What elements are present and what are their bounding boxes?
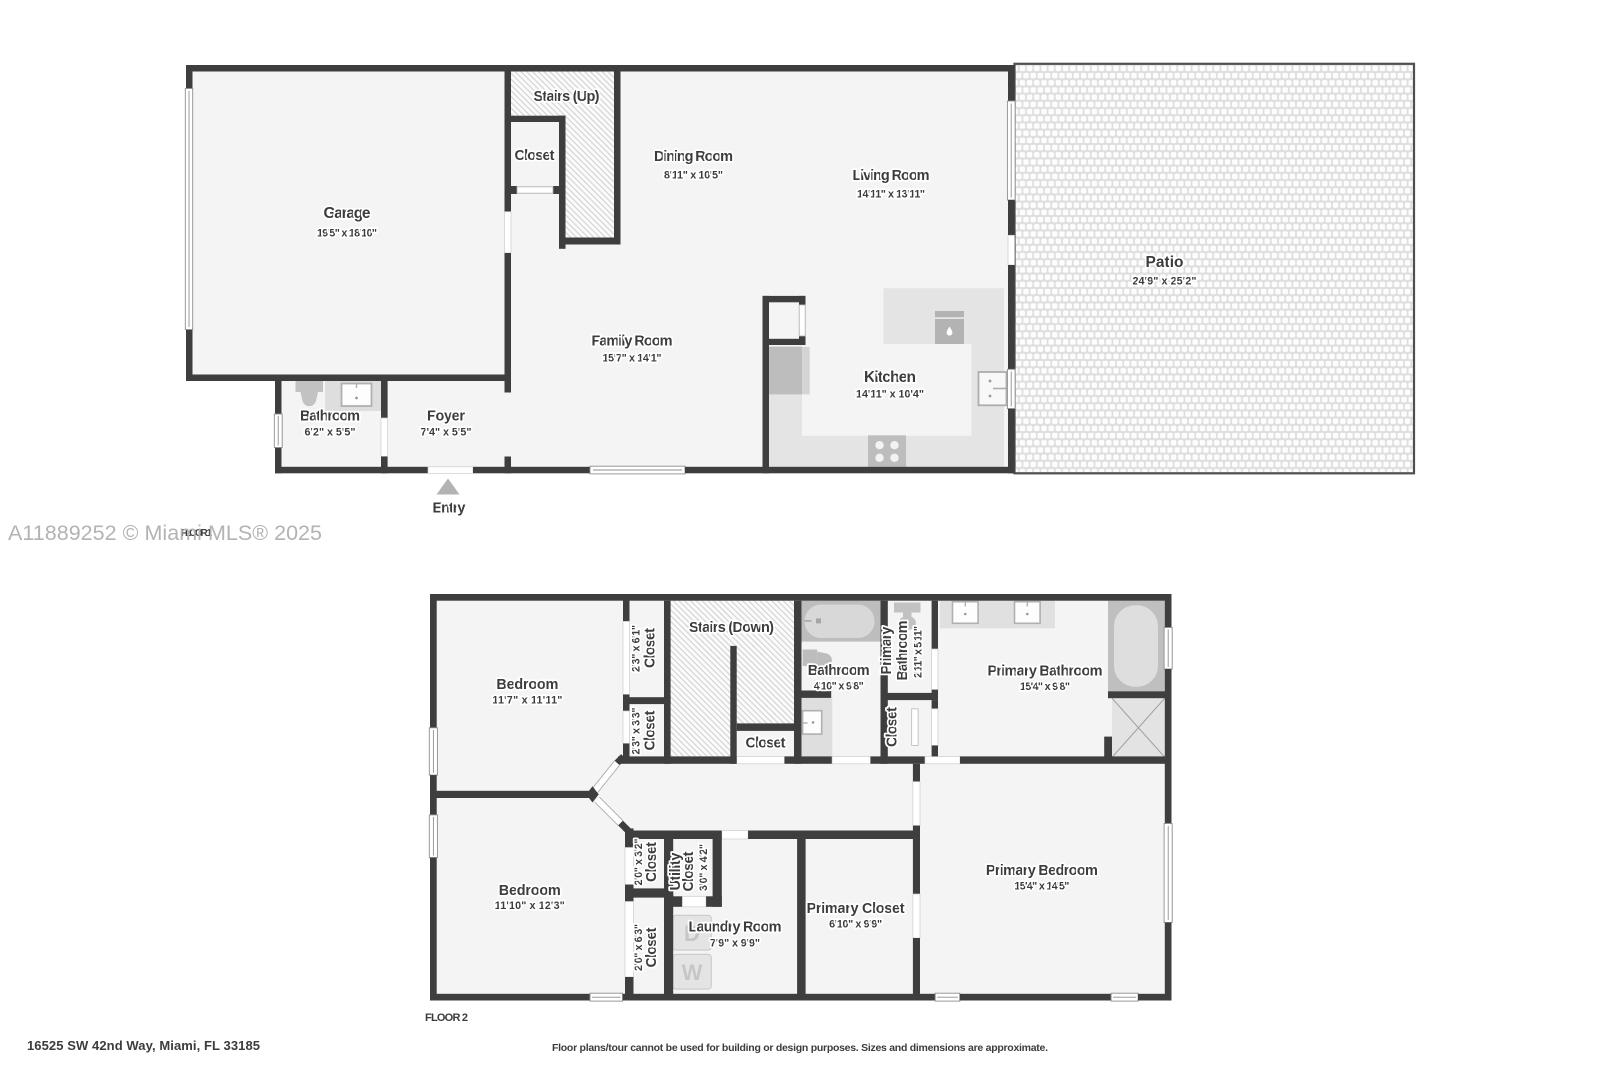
svg-text:6'2" x 5'5": 6'2" x 5'5" xyxy=(305,427,356,439)
svg-text:Stairs (Down): Stairs (Down) xyxy=(689,620,774,636)
svg-text:Primary Closet: Primary Closet xyxy=(807,901,905,917)
svg-text:16525 SW 42nd Way, Miami, FL 3: 16525 SW 42nd Way, Miami, FL 33185 xyxy=(27,1038,260,1053)
svg-text:14'11" x 13'11": 14'11" x 13'11" xyxy=(857,189,925,201)
svg-text:Dining Room: Dining Room xyxy=(654,149,733,165)
svg-text:Garage: Garage xyxy=(324,205,371,222)
svg-text:Closet: Closet xyxy=(644,927,660,967)
svg-text:Closet: Closet xyxy=(643,628,659,668)
svg-text:15'4" x 14'5": 15'4" x 14'5" xyxy=(1014,881,1069,893)
svg-text:Entry: Entry xyxy=(433,501,466,517)
svg-text:19'5" x 18'10": 19'5" x 18'10" xyxy=(317,228,377,240)
svg-text:7'4" x 5'5": 7'4" x 5'5" xyxy=(421,427,472,439)
svg-text:Laundry Room: Laundry Room xyxy=(689,920,782,936)
svg-text:Patio: Patio xyxy=(1146,254,1184,271)
svg-text:W: W xyxy=(682,960,703,985)
svg-text:Foyer: Foyer xyxy=(427,409,465,425)
svg-text:Kitchen: Kitchen xyxy=(864,369,916,386)
svg-text:Bathroom: Bathroom xyxy=(895,621,911,681)
svg-text:Closet: Closet xyxy=(746,736,786,752)
svg-text:7'9" x 9'9": 7'9" x 9'9" xyxy=(710,938,760,950)
svg-text:2'11" x 5'11": 2'11" x 5'11" xyxy=(912,626,924,678)
svg-text:14'11" x 10'4": 14'11" x 10'4" xyxy=(856,389,924,401)
svg-text:3'0" x 4'2": 3'0" x 4'2" xyxy=(698,844,710,891)
svg-text:4'10" x 9'8": 4'10" x 9'8" xyxy=(814,681,864,693)
svg-text:15'4" x 9'8": 15'4" x 9'8" xyxy=(1020,681,1070,693)
svg-text:Closet: Closet xyxy=(515,148,555,164)
svg-text:24'9" x 25'2": 24'9" x 25'2" xyxy=(1133,276,1197,288)
svg-text:Stairs (Up): Stairs (Up) xyxy=(534,89,600,105)
svg-text:Closet: Closet xyxy=(643,710,659,750)
svg-text:11'10" x 12'3": 11'10" x 12'3" xyxy=(495,900,565,912)
svg-text:2'0" x 6'3": 2'0" x 6'3" xyxy=(633,924,645,971)
svg-text:Primary: Primary xyxy=(879,627,895,675)
svg-text:Closet: Closet xyxy=(644,842,660,882)
svg-text:2'3" x 6'1": 2'3" x 6'1" xyxy=(630,625,642,672)
svg-text:8'11" x 10'5": 8'11" x 10'5" xyxy=(664,170,723,182)
svg-text:Closet: Closet xyxy=(885,707,901,747)
svg-text:Closet: Closet xyxy=(681,851,697,891)
svg-text:FLOOR 2: FLOOR 2 xyxy=(425,1012,468,1024)
svg-text:Bathroom: Bathroom xyxy=(808,663,870,679)
svg-text:6'10" x 9'9": 6'10" x 9'9" xyxy=(829,919,882,931)
svg-text:Primary Bathroom: Primary Bathroom xyxy=(988,664,1103,680)
svg-text:Primary Bedroom: Primary Bedroom xyxy=(986,863,1098,879)
svg-text:A11889252 © Miami MLS® 2025: A11889252 © Miami MLS® 2025 xyxy=(8,521,322,545)
svg-text:Bedroom: Bedroom xyxy=(499,883,561,899)
svg-text:Living Room: Living Room xyxy=(853,168,930,184)
svg-text:2'3" x 3'3": 2'3" x 3'3" xyxy=(630,708,642,755)
svg-text:15'7" x 14'1": 15'7" x 14'1" xyxy=(603,353,662,365)
svg-text:Family Room: Family Room xyxy=(592,334,673,350)
svg-text:Bathroom: Bathroom xyxy=(300,409,360,425)
svg-text:11'7" x 11'11": 11'7" x 11'11" xyxy=(492,695,562,707)
svg-text:Floor plans/tour cannot be use: Floor plans/tour cannot be used for buil… xyxy=(552,1042,1048,1054)
svg-text:Bedroom: Bedroom xyxy=(496,677,558,693)
svg-text:2'0" x 3'2": 2'0" x 3'2" xyxy=(633,839,645,886)
